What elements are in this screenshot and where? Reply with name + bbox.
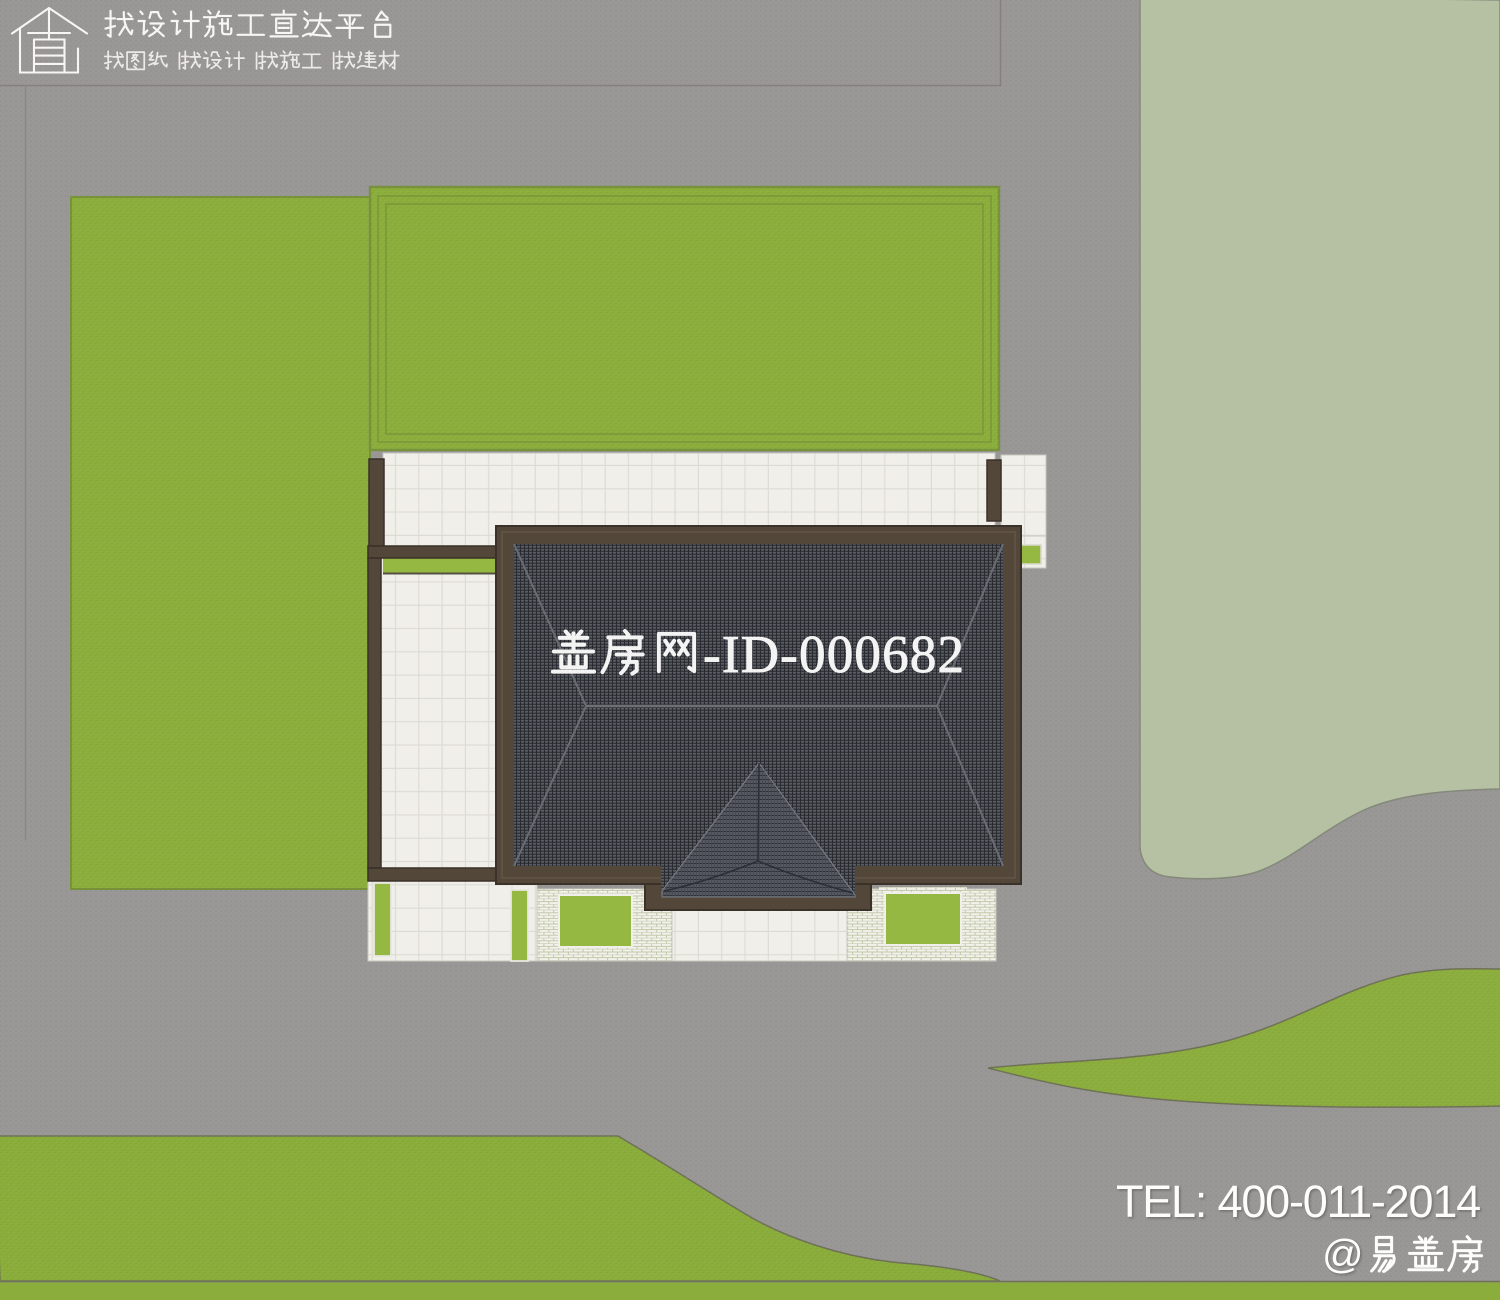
svg-text:TEL: 400-011-2014: TEL: 400-011-2014 bbox=[1116, 1176, 1480, 1227]
svg-text:@: @ bbox=[1322, 1231, 1364, 1277]
svg-text:-ID-000682: -ID-000682 bbox=[703, 626, 965, 684]
